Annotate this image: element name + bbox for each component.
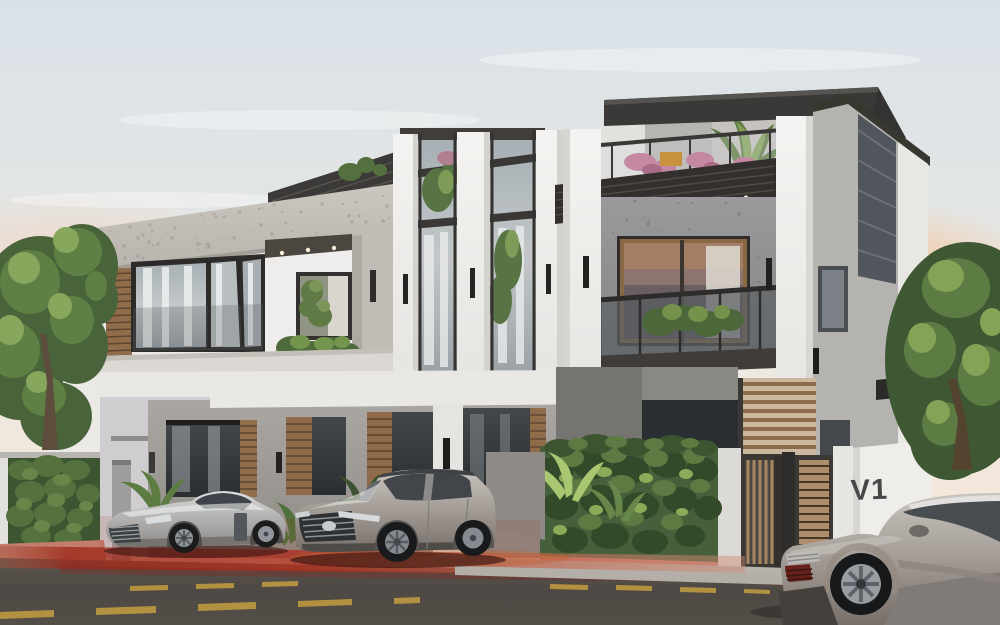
svg-text:V1: V1: [850, 474, 889, 507]
